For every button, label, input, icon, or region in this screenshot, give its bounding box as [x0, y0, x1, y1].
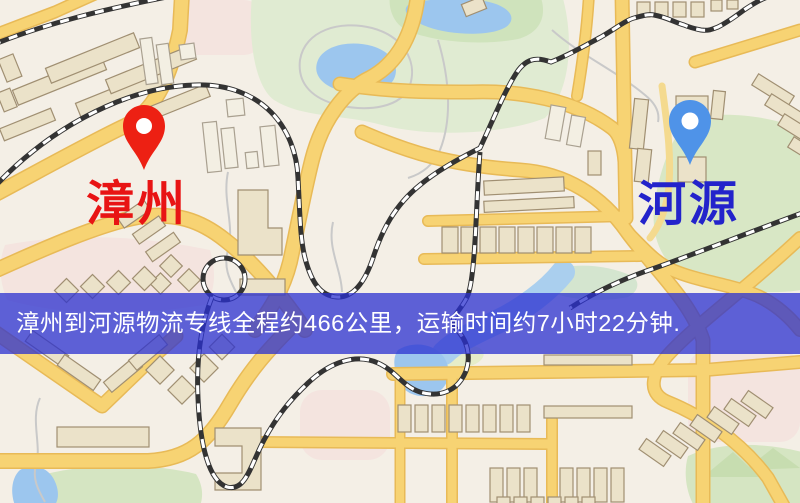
map-canvas: 漳州 河源 漳州到河源物流专线全程约466公里，运输时间约7小时22分钟.	[0, 0, 800, 503]
destination-label: 河源	[638, 178, 740, 231]
pin-hole	[136, 118, 152, 134]
route-info-banner: 漳州到河源物流专线全程约466公里，运输时间约7小时22分钟.	[0, 293, 800, 354]
map-screenshot: 漳州 河源 漳州到河源物流专线全程约466公里，运输时间约7小时22分钟.	[0, 0, 800, 503]
origin-label: 漳州	[86, 178, 188, 231]
route-info-text: 漳州到河源物流专线全程约466公里，运输时间约7小时22分钟.	[16, 310, 680, 336]
pin-hole	[682, 113, 699, 130]
